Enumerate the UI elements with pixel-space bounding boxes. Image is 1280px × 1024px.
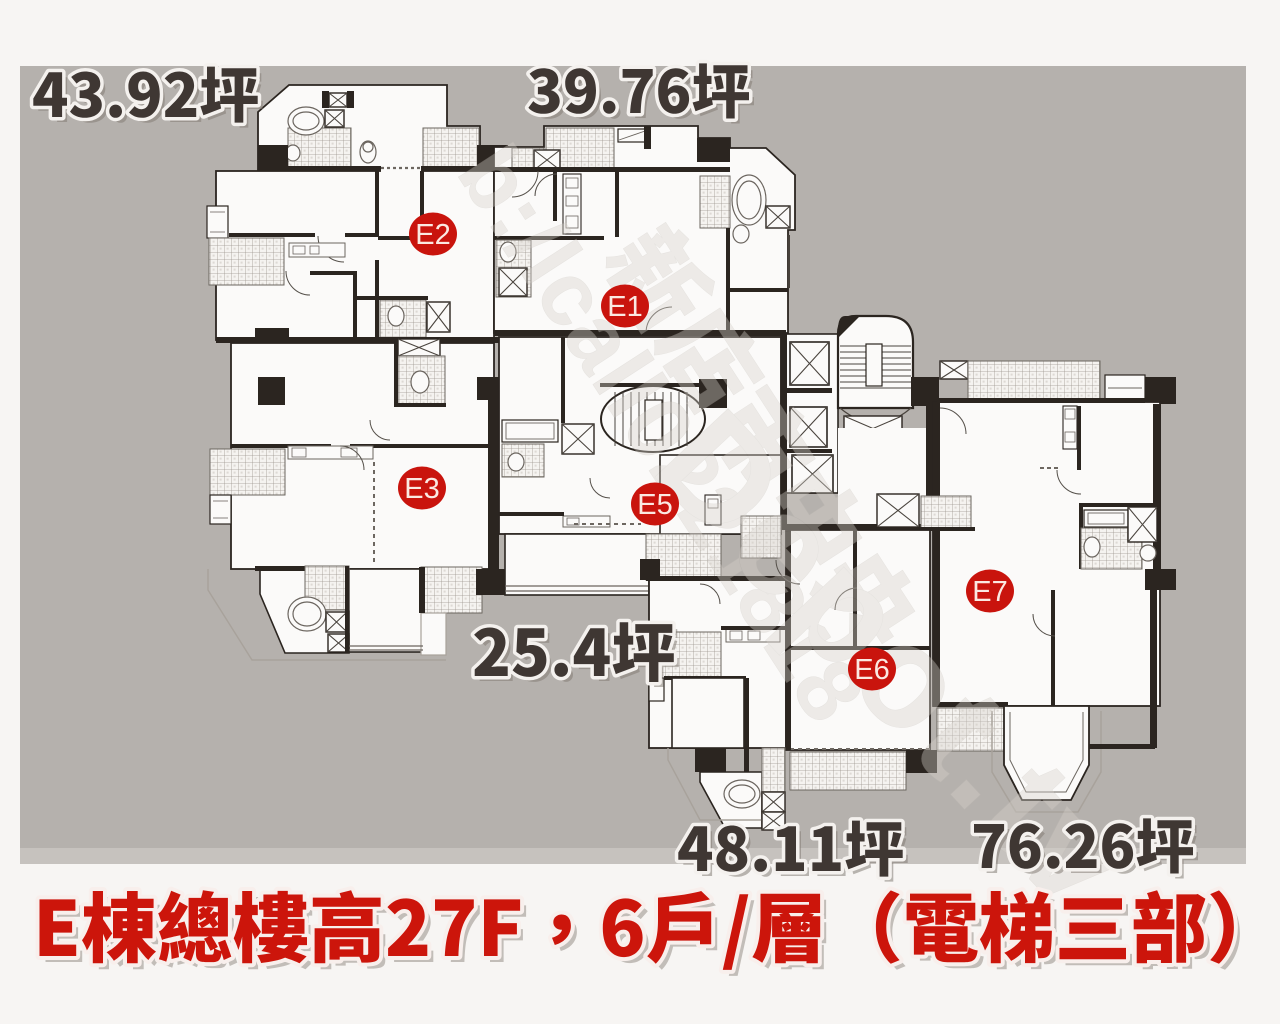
svg-text:E7: E7: [972, 576, 1007, 608]
svg-text:E1: E1: [607, 291, 642, 323]
svg-text:E6: E6: [854, 654, 889, 686]
svg-text:E5: E5: [637, 489, 672, 521]
svg-text:E2: E2: [415, 219, 450, 251]
svg-text:E3: E3: [404, 473, 439, 505]
